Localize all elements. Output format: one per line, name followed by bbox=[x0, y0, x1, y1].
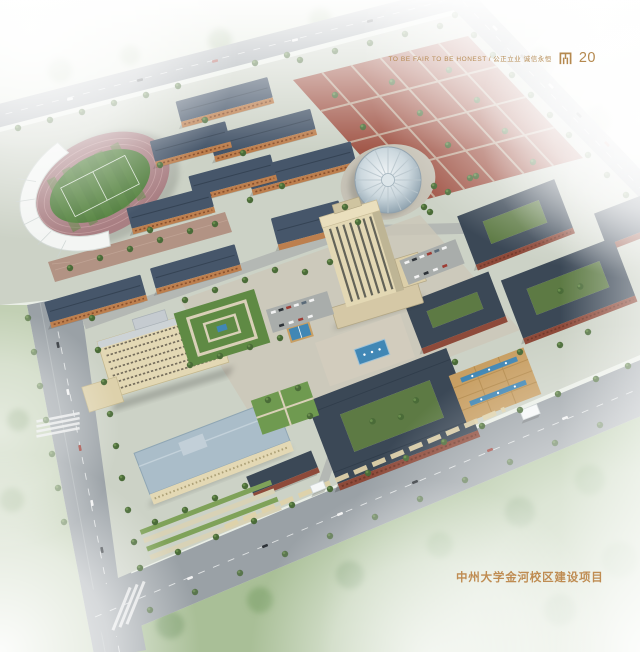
slogan-separator: / bbox=[489, 56, 491, 63]
header-slogan: TO BE FAIR TO BE HONEST/公正立业 诚信永恒 bbox=[388, 53, 551, 63]
page-number: 20 bbox=[579, 51, 596, 66]
page-header: TO BE FAIR TO BE HONEST/公正立业 诚信永恒 20 bbox=[0, 50, 596, 66]
project-title: 中州大学金河校区建设项目 bbox=[456, 569, 604, 585]
slogan-en: TO BE FAIR TO BE HONEST bbox=[388, 56, 486, 63]
publisher-logo-icon bbox=[559, 52, 572, 65]
slogan-zh: 公正立业 诚信永恒 bbox=[493, 56, 552, 63]
campus-rendering-page: TO BE FAIR TO BE HONEST/公正立业 诚信永恒 20 中州大… bbox=[0, 0, 640, 652]
campus-aerial-rendering bbox=[0, 0, 640, 652]
